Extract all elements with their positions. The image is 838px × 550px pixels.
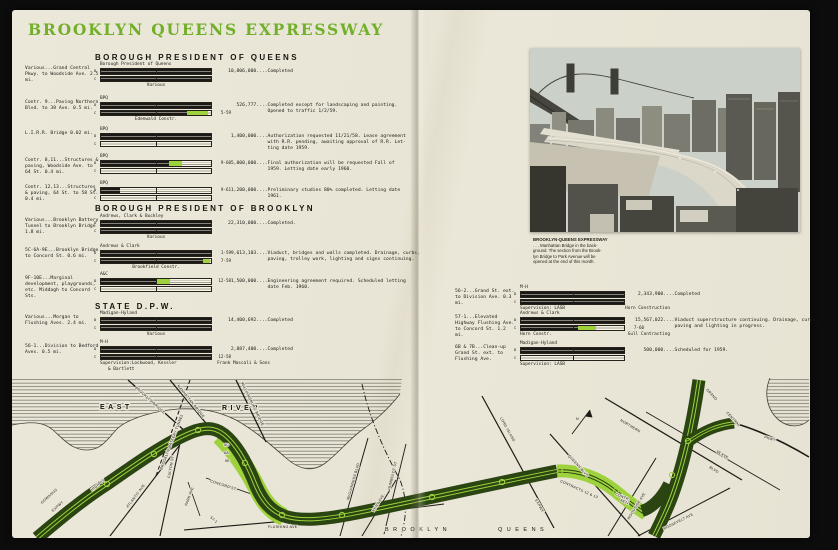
map-label: 5C [224, 443, 229, 447]
map-label: McGUINNESS BLVD [346, 462, 360, 500]
progress-bars: Madigan-Hyland D C Various [100, 311, 212, 338]
construction-bar [520, 299, 625, 306]
progress-bars: BPQ D C [100, 127, 212, 148]
contractor-labels: Horn Constr. Gull Contracting [520, 332, 670, 338]
project-label: Contr. 9...Paving Northern Blvd. to 38 A… [25, 100, 101, 112]
construction-bar [100, 228, 212, 235]
map-label-north: N [576, 417, 579, 421]
design-bar [100, 278, 212, 285]
contractor-label: Various [100, 235, 212, 241]
contractor-label: Various [100, 83, 212, 89]
progress-bars: Borough President of Queens D C Various [100, 62, 212, 89]
design-bar [100, 133, 212, 140]
map-label: CONCORD ST. [210, 479, 238, 491]
construction-bar [100, 110, 212, 117]
map-label: LONG ISLAND [499, 417, 516, 443]
construction-bar [100, 325, 212, 332]
design-bar [100, 250, 212, 257]
map-label: EAST [100, 404, 133, 411]
amount-status: 15,567,022....Viaduct superstructure con… [635, 318, 823, 330]
map-label: GRAND [705, 388, 718, 401]
amount-status: 14,400,692....Completed [228, 318, 428, 324]
contractor-label: Various [100, 332, 212, 338]
map-label: PKWY [764, 435, 777, 442]
amount-status: 1,400,000....Authorization requested 11/… [228, 134, 428, 152]
map-label: EXPWY [534, 499, 545, 514]
amount-status: 500,000....Scheduled for 1959. [635, 348, 823, 354]
project-label: 56-2...Grand St. ext. to Division Ave. 0… [455, 289, 517, 307]
amount-status: 5,000,000....Final authorization will be… [228, 161, 428, 173]
section-header-state: STATE D.P.W. [95, 302, 175, 311]
construction-bar [520, 325, 625, 332]
design-bar [100, 160, 212, 167]
construction-bar [100, 141, 212, 148]
supervision-labels: Supervision: LASB [520, 362, 670, 368]
letting-date: 12-58 [218, 354, 231, 360]
amount-status: 2,343,900....Completed [635, 292, 823, 298]
amount-status: 1,500,000....Engineering agreement requi… [228, 279, 428, 291]
design-bar [100, 220, 212, 227]
project-label: 9F-10E...Marginal development, playgroun… [25, 276, 101, 300]
design-bar [100, 187, 212, 194]
section-header-brooklyn: BOROUGH PRESIDENT OF BROOKLYN [95, 204, 315, 213]
map-label: 6A [224, 451, 229, 455]
amount-status: 2,887,400....Completed [228, 347, 428, 353]
map-label: 38 AVE [715, 449, 729, 460]
contractor-label: Brookfield Constr. [100, 265, 212, 271]
project-label: Contr. 8,11...Structures & paving, Woods… [25, 158, 101, 176]
construction-bar [100, 168, 212, 175]
page-title: BROOKLYN QUEENS EXPRESSWAY [28, 20, 384, 39]
construction-bar [520, 355, 625, 362]
progress-bars: A&C D 12-58 C [100, 272, 212, 293]
project-label: Contr. 12,13...Structures & paving, 64 S… [25, 185, 101, 203]
construction-bar [100, 354, 212, 361]
map-label: GOWANUS [40, 488, 58, 505]
project-label: Various...Morgan to Flushing Aves. 2.4 m… [25, 315, 101, 327]
section-header-queens: BOROUGH PRESIDENT OF QUEENS [95, 53, 299, 62]
construction-bar [100, 258, 212, 265]
map-label: FULTON ST. [167, 455, 175, 479]
progress-bars: BPQ D 9-60 C [100, 154, 212, 175]
project-label: 56-1...Division to Bedford Aves. 0.5 mi. [25, 344, 101, 356]
design-bar [520, 347, 625, 354]
aerial-photo [530, 48, 800, 232]
map-label: NORTHERN [619, 418, 641, 433]
amount-status: 1,200,000....Preliminary studies 80% com… [228, 188, 428, 200]
route-map: N EAST RIVER BROOKLYN-BATTERY TUNNEL BRO… [12, 378, 810, 538]
scanned-report-spread: BROOKLYN QUEENS EXPRESSWAY BOROUGH PRESI… [0, 0, 838, 550]
progress-bars: BPQ D C 5-59 Edenwald Constr. [100, 96, 212, 123]
project-label: 6B & 7B...Clean-up Grand St. ext. to Flu… [455, 345, 517, 363]
report-page: BROOKLYN QUEENS EXPRESSWAY BOROUGH PRESI… [12, 10, 810, 538]
map-label: 9E [225, 459, 230, 463]
map-label: BLVD [708, 465, 719, 474]
amount-status: 22,310,000....Completed. [228, 221, 428, 227]
contractor-label: Edenwald Constr. [100, 117, 212, 123]
progress-bars: Madigan-Hyland D C Supervision: LASB [520, 341, 625, 368]
construction-bar [100, 195, 212, 202]
project-label: Various...Grand Central Pkwy. to Woodsid… [25, 66, 101, 84]
progress-bars: Andrews & Clark D 1-59 C 7-59 Brookfield… [100, 244, 212, 271]
design-bar [520, 291, 625, 298]
project-label: L.I.R.R. Bridge 0.02 mi. [25, 131, 101, 137]
north-arrow: N [572, 410, 593, 434]
project-label: 57-1...Elevated Highway Flushing Ave. to… [455, 315, 517, 339]
design-bar [100, 346, 212, 353]
amount-status: 526,777....Completed except for landscap… [228, 103, 428, 115]
design-bar [520, 317, 625, 324]
amount-status: 10,806,000....Completed [228, 69, 428, 75]
progress-bars: Andrews & Clark D C 7-60 Horn Constr. Gu… [520, 311, 625, 338]
flushing-bay-water [767, 378, 809, 426]
construction-bar [100, 286, 212, 293]
project-label: Various...Brooklyn Battery Tunnel to Bro… [25, 218, 101, 236]
map-label: ATLANTIC AVE. [126, 482, 147, 508]
photo-caption: BROOKLYN-QUEENS EXPRESSWAY . . . Manhatt… [533, 237, 633, 265]
design-bar [100, 68, 212, 75]
design-bar [100, 317, 212, 324]
progress-bars: M-H D C Supervision: LASB Horn Construct… [520, 285, 625, 312]
northern-blvd-line [605, 398, 742, 480]
map-label: QUEENS [498, 527, 548, 533]
map-label: 57-1 [209, 516, 218, 524]
map-label: FLUSHING AVE. [268, 525, 299, 529]
progress-bars: M-H D C 12-58 Supervision:Lockwood, Kess… [100, 340, 212, 373]
amount-status: 9,613,103....Viaduct, bridges and walls … [228, 251, 428, 263]
progress-bars: BPQ D 9-61 C [100, 181, 212, 202]
design-bar [100, 102, 212, 109]
construction-bar [100, 76, 212, 83]
map-label: BROOKLYN [385, 527, 451, 533]
project-label: 5C-6A-9E...Brooklyn Bridge to Concord St… [25, 248, 101, 260]
progress-bars: Andrews, Clark & Buckley D C Various [100, 214, 212, 241]
